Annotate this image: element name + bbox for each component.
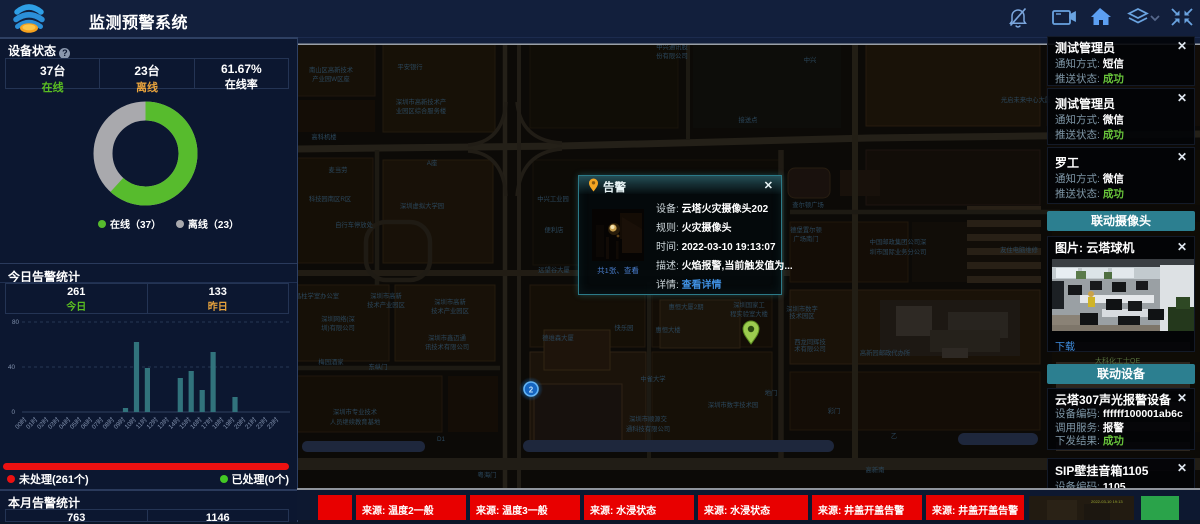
svg-text:南山区高新技术: 南山区高新技术 xyxy=(309,65,354,74)
svg-text:东纵门: 东纵门 xyxy=(369,362,388,371)
svg-text:乙: 乙 xyxy=(891,432,897,440)
svg-text:产业园W区座: 产业园W区座 xyxy=(312,74,349,83)
svg-text:程实验室大楼: 程实验室大楼 xyxy=(730,309,768,318)
svg-text:梅园酒家: 梅园酒家 xyxy=(318,357,344,366)
svg-text:友住电脑维修: 友住电脑维修 xyxy=(1000,245,1038,254)
svg-text:查尔顿广场: 查尔顿广场 xyxy=(792,200,823,209)
svg-text:快乐园: 快乐园 xyxy=(615,323,634,332)
svg-text:深圳网络(深: 深圳网络(深 xyxy=(321,314,355,323)
svg-text:接送点: 接送点 xyxy=(739,115,758,124)
svg-text:中兴: 中兴 xyxy=(804,55,817,64)
svg-text:D1: D1 xyxy=(437,436,446,443)
svg-text:80: 80 xyxy=(12,319,20,326)
svg-text:地门: 地门 xyxy=(765,388,778,397)
svg-text:中雀大学: 中雀大学 xyxy=(640,374,665,383)
svg-text:惠恒大楼: 惠恒大楼 xyxy=(655,325,681,334)
svg-text:高新园邮政代办所: 高新园邮政代办所 xyxy=(860,348,911,357)
svg-text:业园区综合服务楼: 业园区综合服务楼 xyxy=(396,106,447,115)
svg-text:自行车停放处: 自行车停放处 xyxy=(335,220,373,229)
svg-text:麦当劳: 麦当劳 xyxy=(329,165,348,174)
svg-text:远望谷大厦: 远望谷大厦 xyxy=(538,265,570,274)
svg-text:德堡置尔顿: 德堡置尔顿 xyxy=(790,225,822,234)
svg-text:高新南: 高新南 xyxy=(866,465,885,474)
svg-text:彩门: 彩门 xyxy=(828,406,841,415)
svg-text:术有限公司: 术有限公司 xyxy=(794,344,825,353)
svg-text:40: 40 xyxy=(8,364,16,371)
svg-text:深圳市高新技术产: 深圳市高新技术产 xyxy=(396,97,446,106)
svg-text:通科技有限公司: 通科技有限公司 xyxy=(626,424,670,433)
svg-text:德维森大厦: 德维森大厦 xyxy=(542,333,574,342)
svg-text:昌柱学室办公室: 昌柱学室办公室 xyxy=(297,291,339,300)
svg-text:科技园南区R区: 科技园南区R区 xyxy=(309,194,351,203)
svg-text:A座: A座 xyxy=(427,158,438,167)
svg-text:深圳虚拟大学园: 深圳虚拟大学园 xyxy=(400,201,444,210)
svg-text:光启未来中心大厦: 光启未来中心大厦 xyxy=(1001,95,1052,104)
svg-text:深圳国家工: 深圳国家工 xyxy=(733,300,764,309)
svg-text:2: 2 xyxy=(529,386,534,395)
svg-text:份有限公司: 份有限公司 xyxy=(656,51,687,60)
svg-text:高科机楼: 高科机楼 xyxy=(311,132,337,141)
svg-text:技术园区: 技术园区 xyxy=(789,311,814,320)
svg-text:2022-03-10 19:13: 2022-03-10 19:13 xyxy=(1091,499,1123,504)
svg-text:深圳市数字: 深圳市数字 xyxy=(786,304,817,313)
svg-text:深圳市鑫迈通: 深圳市鑫迈通 xyxy=(428,333,466,342)
svg-text:深圳市数字技术园: 深圳市数字技术园 xyxy=(708,400,758,409)
svg-text:0: 0 xyxy=(11,409,15,416)
svg-text:粤海门: 粤海门 xyxy=(478,470,497,479)
svg-text:西龙同辉技: 西龙同辉技 xyxy=(794,337,826,346)
svg-text:深圳市高新: 深圳市高新 xyxy=(370,291,402,300)
svg-text:人员继续教育基地: 人员继续教育基地 xyxy=(330,417,381,426)
svg-text:平安银行: 平安银行 xyxy=(397,62,423,71)
svg-text:便利店: 便利店 xyxy=(545,225,564,234)
svg-text:技术产业园区: 技术产业园区 xyxy=(431,306,469,315)
svg-text:技术产业园区: 技术产业园区 xyxy=(367,300,405,309)
svg-text:惠恒大厦2期: 惠恒大厦2期 xyxy=(669,302,704,311)
svg-text:圳市国际业务分公司: 圳市国际业务分公司 xyxy=(870,247,927,256)
svg-text:广场南门: 广场南门 xyxy=(793,234,818,243)
svg-text:深圳市专业技术: 深圳市专业技术 xyxy=(333,407,378,416)
svg-text:中兴工业园: 中兴工业园 xyxy=(537,194,568,203)
svg-text:深圳市高新: 深圳市高新 xyxy=(434,297,466,306)
svg-text:讯技术有限公司: 讯技术有限公司 xyxy=(425,342,469,351)
svg-text:圳)有限公司: 圳)有限公司 xyxy=(321,323,355,332)
svg-text:中国邮政集团公司深: 中国邮政集团公司深 xyxy=(870,237,927,246)
svg-text:深圳市顺源交: 深圳市顺源交 xyxy=(629,414,667,423)
